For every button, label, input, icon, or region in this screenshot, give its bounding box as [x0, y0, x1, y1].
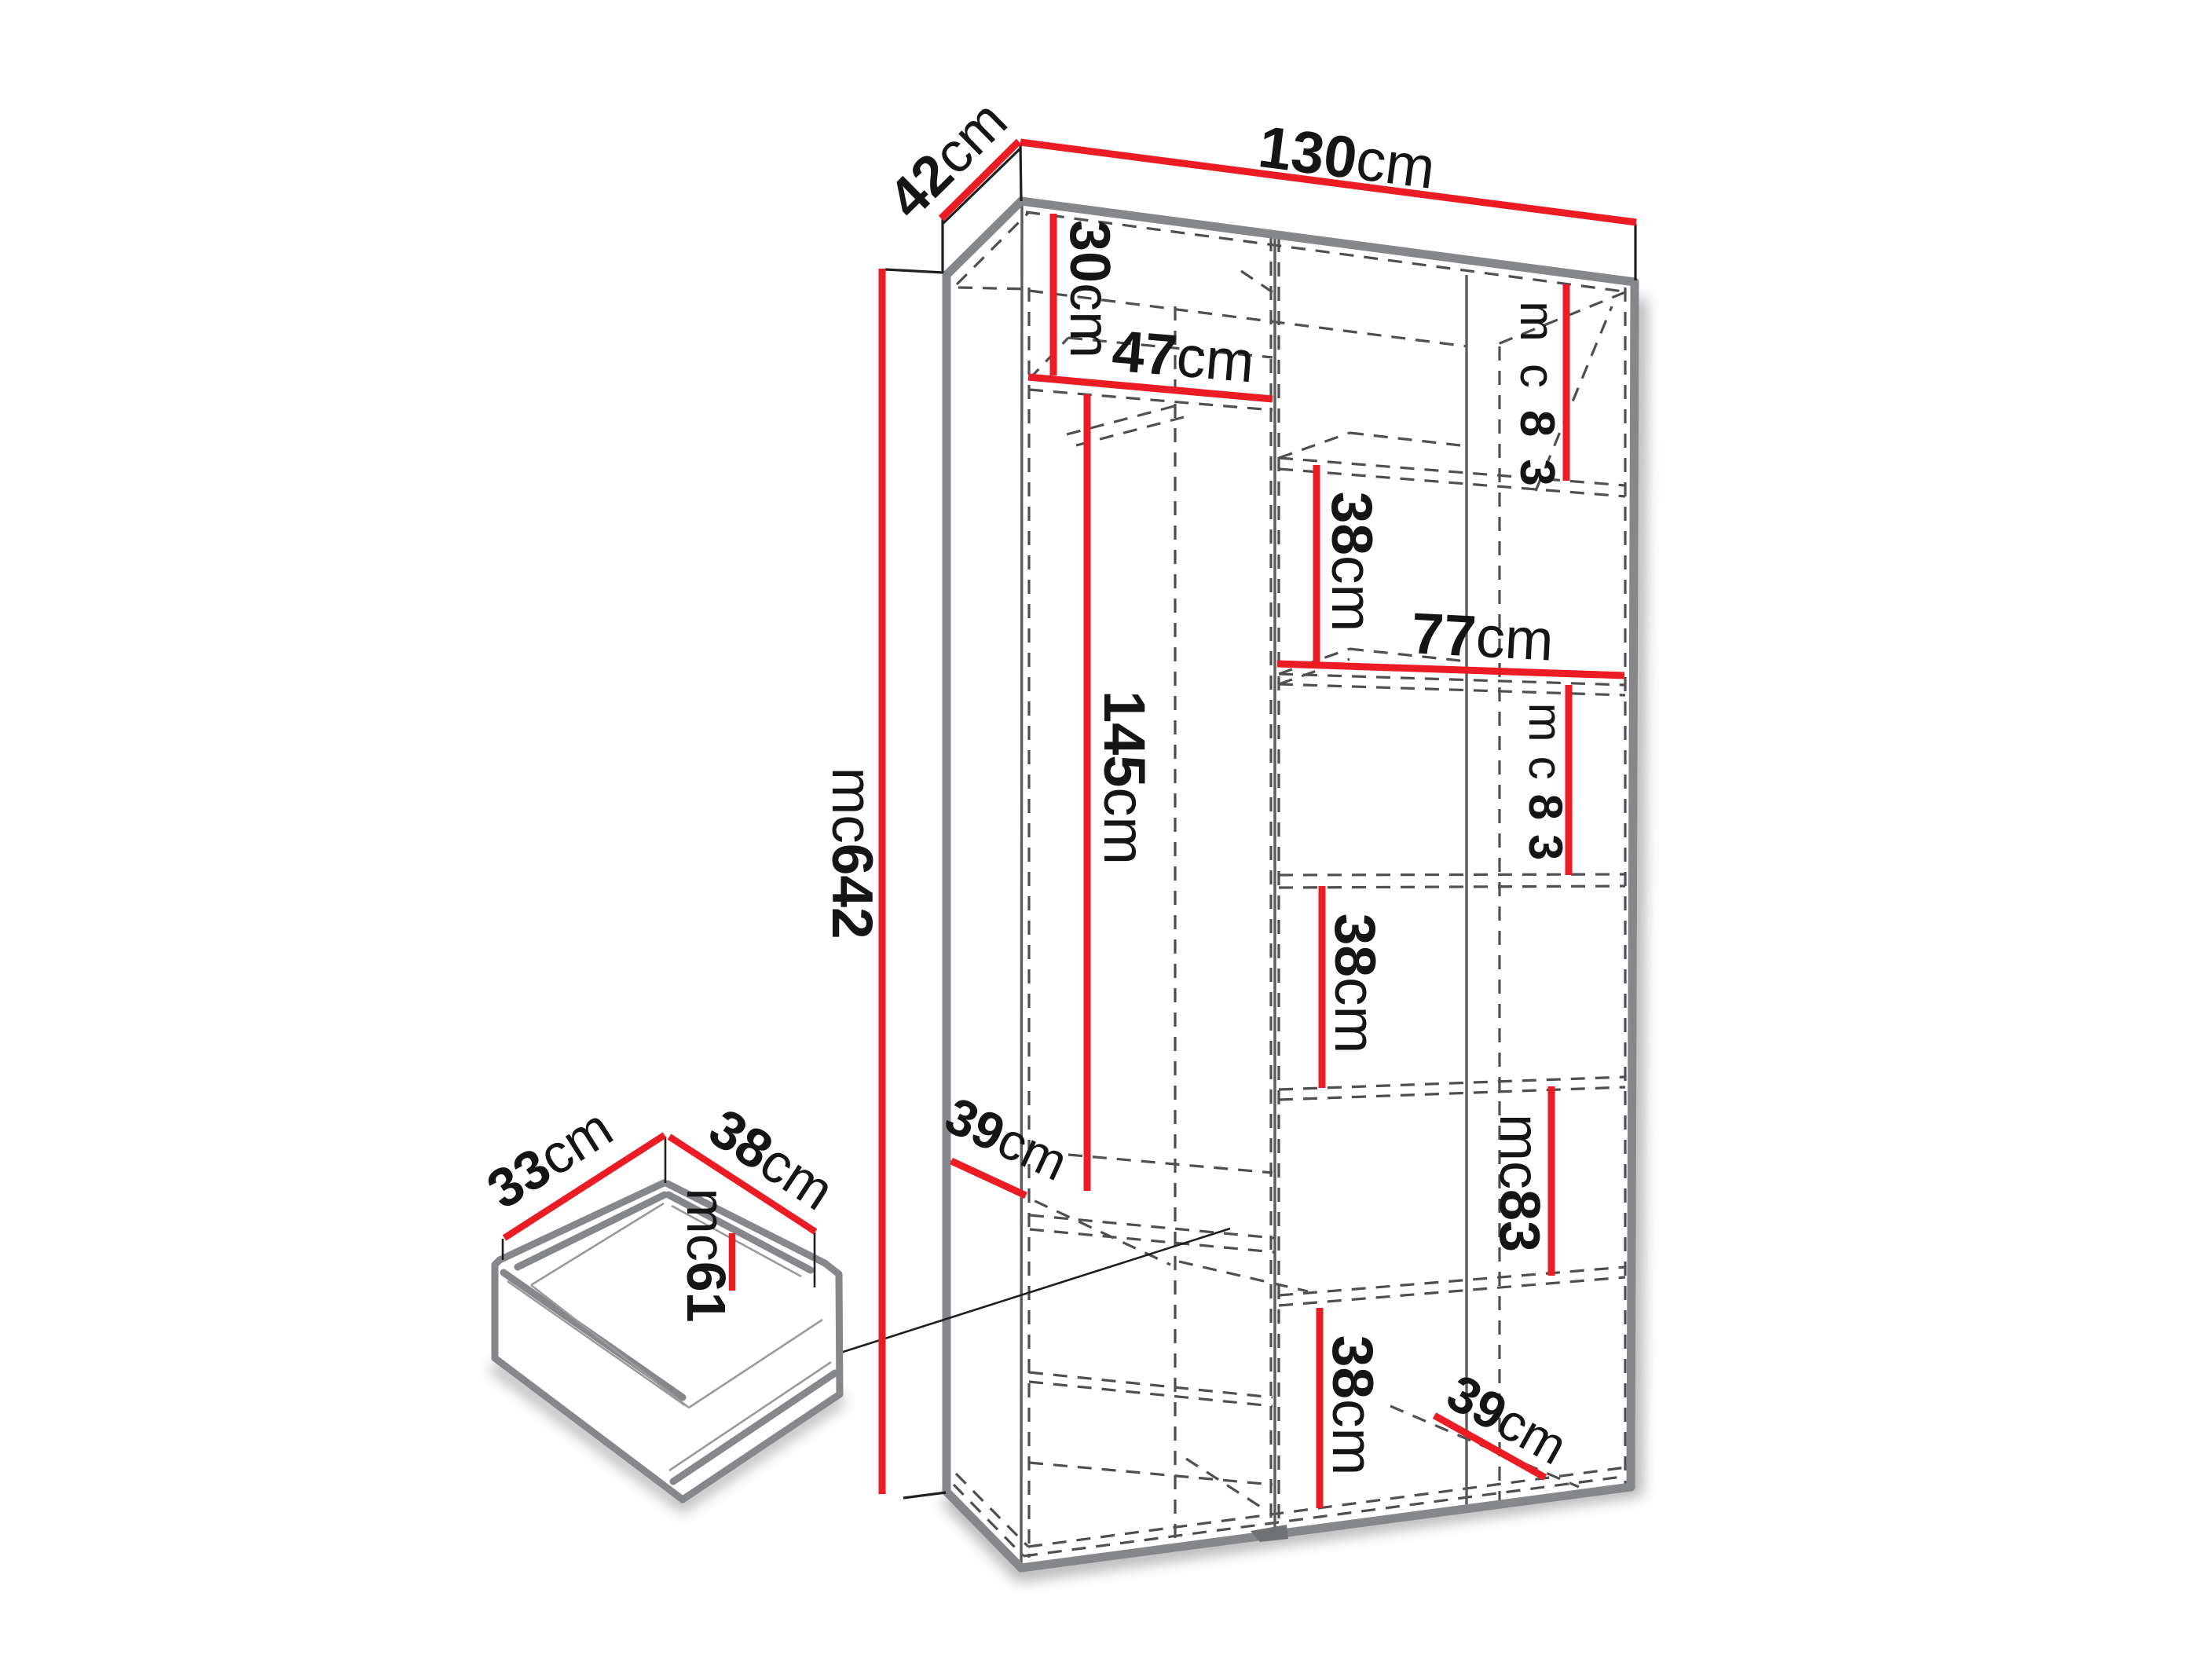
svg-text:mc83: mc83 [1510, 301, 1564, 508]
svg-text:mc83: mc83 [1488, 1114, 1551, 1252]
svg-text:mc61: mc61 [676, 1188, 737, 1322]
svg-text:38cm: 38cm [1320, 1335, 1384, 1476]
svg-text:38cm: 38cm [1323, 914, 1386, 1054]
svg-text:47cm: 47cm [1110, 317, 1257, 394]
svg-text:30cm: 30cm [1058, 220, 1121, 358]
svg-text:145cm: 145cm [1092, 690, 1157, 865]
svg-text:38cm: 38cm [1320, 492, 1383, 632]
svg-text:mc642: mc642 [820, 767, 884, 939]
svg-text:mc83: mc83 [1519, 703, 1572, 875]
svg-text:77cm: 77cm [1410, 600, 1555, 672]
